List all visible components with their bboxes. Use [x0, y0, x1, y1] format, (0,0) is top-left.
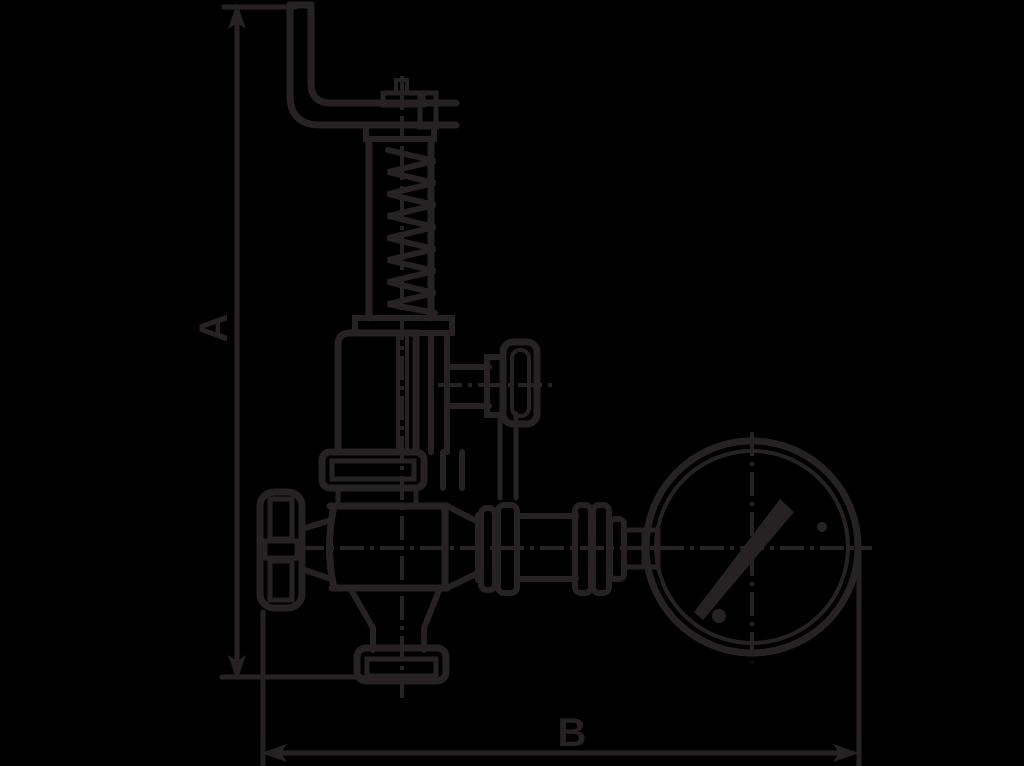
- dim-b-label: B: [558, 711, 587, 755]
- valve-technical-drawing: A B: [0, 0, 1024, 766]
- gauge-screw-upper-icon: [817, 522, 827, 532]
- dim-a-label: A: [192, 314, 236, 343]
- gauge-screw-lower-icon: [712, 609, 726, 623]
